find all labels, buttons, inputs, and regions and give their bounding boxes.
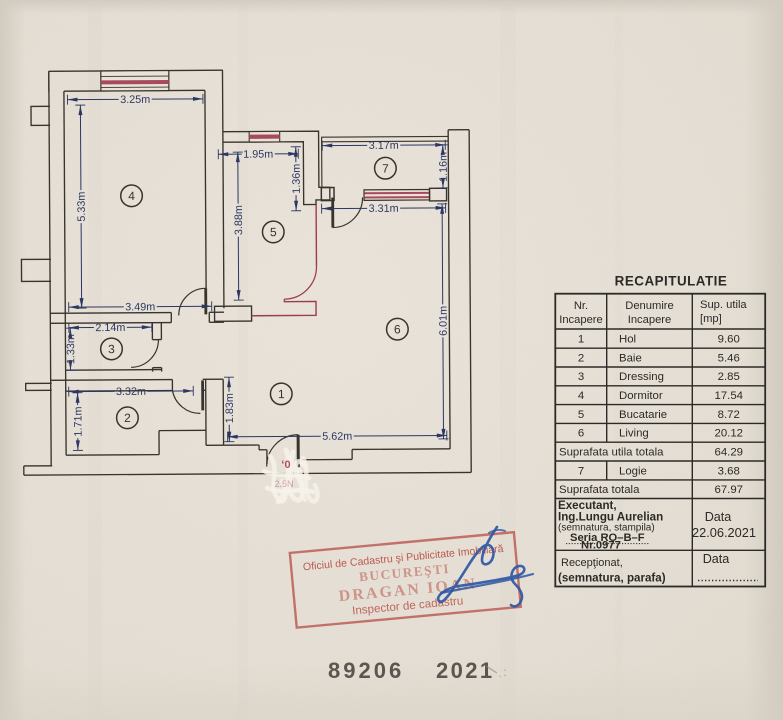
svg-text:17.54: 17.54 (714, 390, 743, 402)
svg-text:20.12: 20.12 (714, 428, 743, 440)
svg-text:7: 7 (382, 161, 389, 175)
svg-text:Living: Living (619, 428, 649, 440)
svg-text:Nr.0977: Nr.0977 (581, 540, 621, 552)
svg-text:4: 4 (578, 390, 584, 402)
svg-text:64.29: 64.29 (714, 447, 743, 459)
svg-text:Baie: Baie (619, 352, 642, 364)
svg-text:Nr.: Nr. (574, 300, 588, 312)
svg-text:.: . (498, 666, 501, 680)
svg-text:ʻ0: ʻ0 (281, 459, 290, 471)
svg-text:6: 6 (578, 428, 584, 440)
svg-text:5: 5 (270, 225, 277, 239)
svg-text:Incapere: Incapere (559, 314, 603, 326)
svg-text:2: 2 (578, 352, 584, 364)
svg-text:22.06.2021: 22.06.2021 (692, 525, 756, 540)
svg-text:RECAPITULATIE: RECAPITULATIE (615, 274, 728, 289)
svg-text:Logie: Logie (619, 465, 647, 477)
svg-text:67.97: 67.97 (714, 484, 743, 496)
svg-text:6.01m: 6.01m (438, 306, 450, 336)
svg-text:3.31m: 3.31m (369, 203, 399, 215)
svg-text:3.17m: 3.17m (369, 140, 399, 152)
svg-text:3: 3 (108, 342, 115, 356)
svg-text:5.46: 5.46 (718, 352, 740, 364)
svg-text:Sup. utila: Sup. utila (700, 299, 747, 311)
svg-text:Data: Data (705, 510, 732, 524)
svg-text:9.60: 9.60 (718, 334, 740, 346)
svg-text:89206: 89206 (328, 658, 404, 683)
svg-text:3.32m: 3.32m (116, 386, 146, 398)
svg-text:Suprafata utila totala: Suprafata utila totala (559, 447, 664, 459)
svg-text:Data: Data (703, 552, 730, 566)
svg-text:1: 1 (578, 334, 584, 346)
svg-text:1.83m: 1.83m (224, 393, 236, 423)
svg-text:Recepţionat,: Recepţionat, (561, 557, 623, 569)
svg-text:Bucatarie: Bucatarie (619, 409, 667, 421)
svg-text:6: 6 (394, 322, 401, 336)
svg-text::: : (503, 665, 506, 679)
svg-text:8.72: 8.72 (718, 409, 740, 421)
svg-text:2.85: 2.85 (718, 371, 740, 383)
svg-text:5.33m: 5.33m (76, 192, 88, 222)
svg-text:3: 3 (578, 371, 584, 383)
svg-text:3.25m: 3.25m (120, 94, 150, 106)
svg-text:5: 5 (578, 409, 584, 421)
svg-text:4: 4 (128, 189, 135, 203)
svg-text:1.71m: 1.71m (72, 407, 84, 437)
svg-text:3.68: 3.68 (718, 465, 740, 477)
svg-text:2.14m: 2.14m (95, 322, 125, 334)
svg-text:3.88m: 3.88m (233, 205, 245, 235)
svg-text:1: 1 (278, 387, 285, 401)
svg-text:(semnatura, parafa): (semnatura, parafa) (558, 572, 666, 585)
svg-text:5.62m: 5.62m (322, 431, 352, 443)
svg-text:7: 7 (578, 465, 584, 477)
svg-text:Dressing: Dressing (619, 371, 664, 383)
svg-text:Denumire: Denumire (625, 300, 674, 312)
svg-text:1.33m: 1.33m (65, 334, 77, 364)
svg-text:Incapere: Incapere (628, 314, 672, 326)
svg-text:Dormitor: Dormitor (619, 390, 663, 402)
svg-text:1.95m: 1.95m (243, 149, 273, 161)
svg-text:2021: 2021 (436, 658, 495, 683)
svg-text:Hol: Hol (619, 334, 636, 346)
svg-text:2.5N: 2.5N (274, 479, 293, 489)
svg-text:Suprafata totala: Suprafata totala (559, 484, 640, 496)
svg-text:3.49m: 3.49m (125, 301, 155, 313)
svg-text:1.36m: 1.36m (291, 164, 303, 194)
svg-text:1.16m: 1.16m (438, 152, 450, 182)
svg-text:2: 2 (124, 411, 131, 425)
svg-text:[mp]: [mp] (700, 313, 722, 325)
